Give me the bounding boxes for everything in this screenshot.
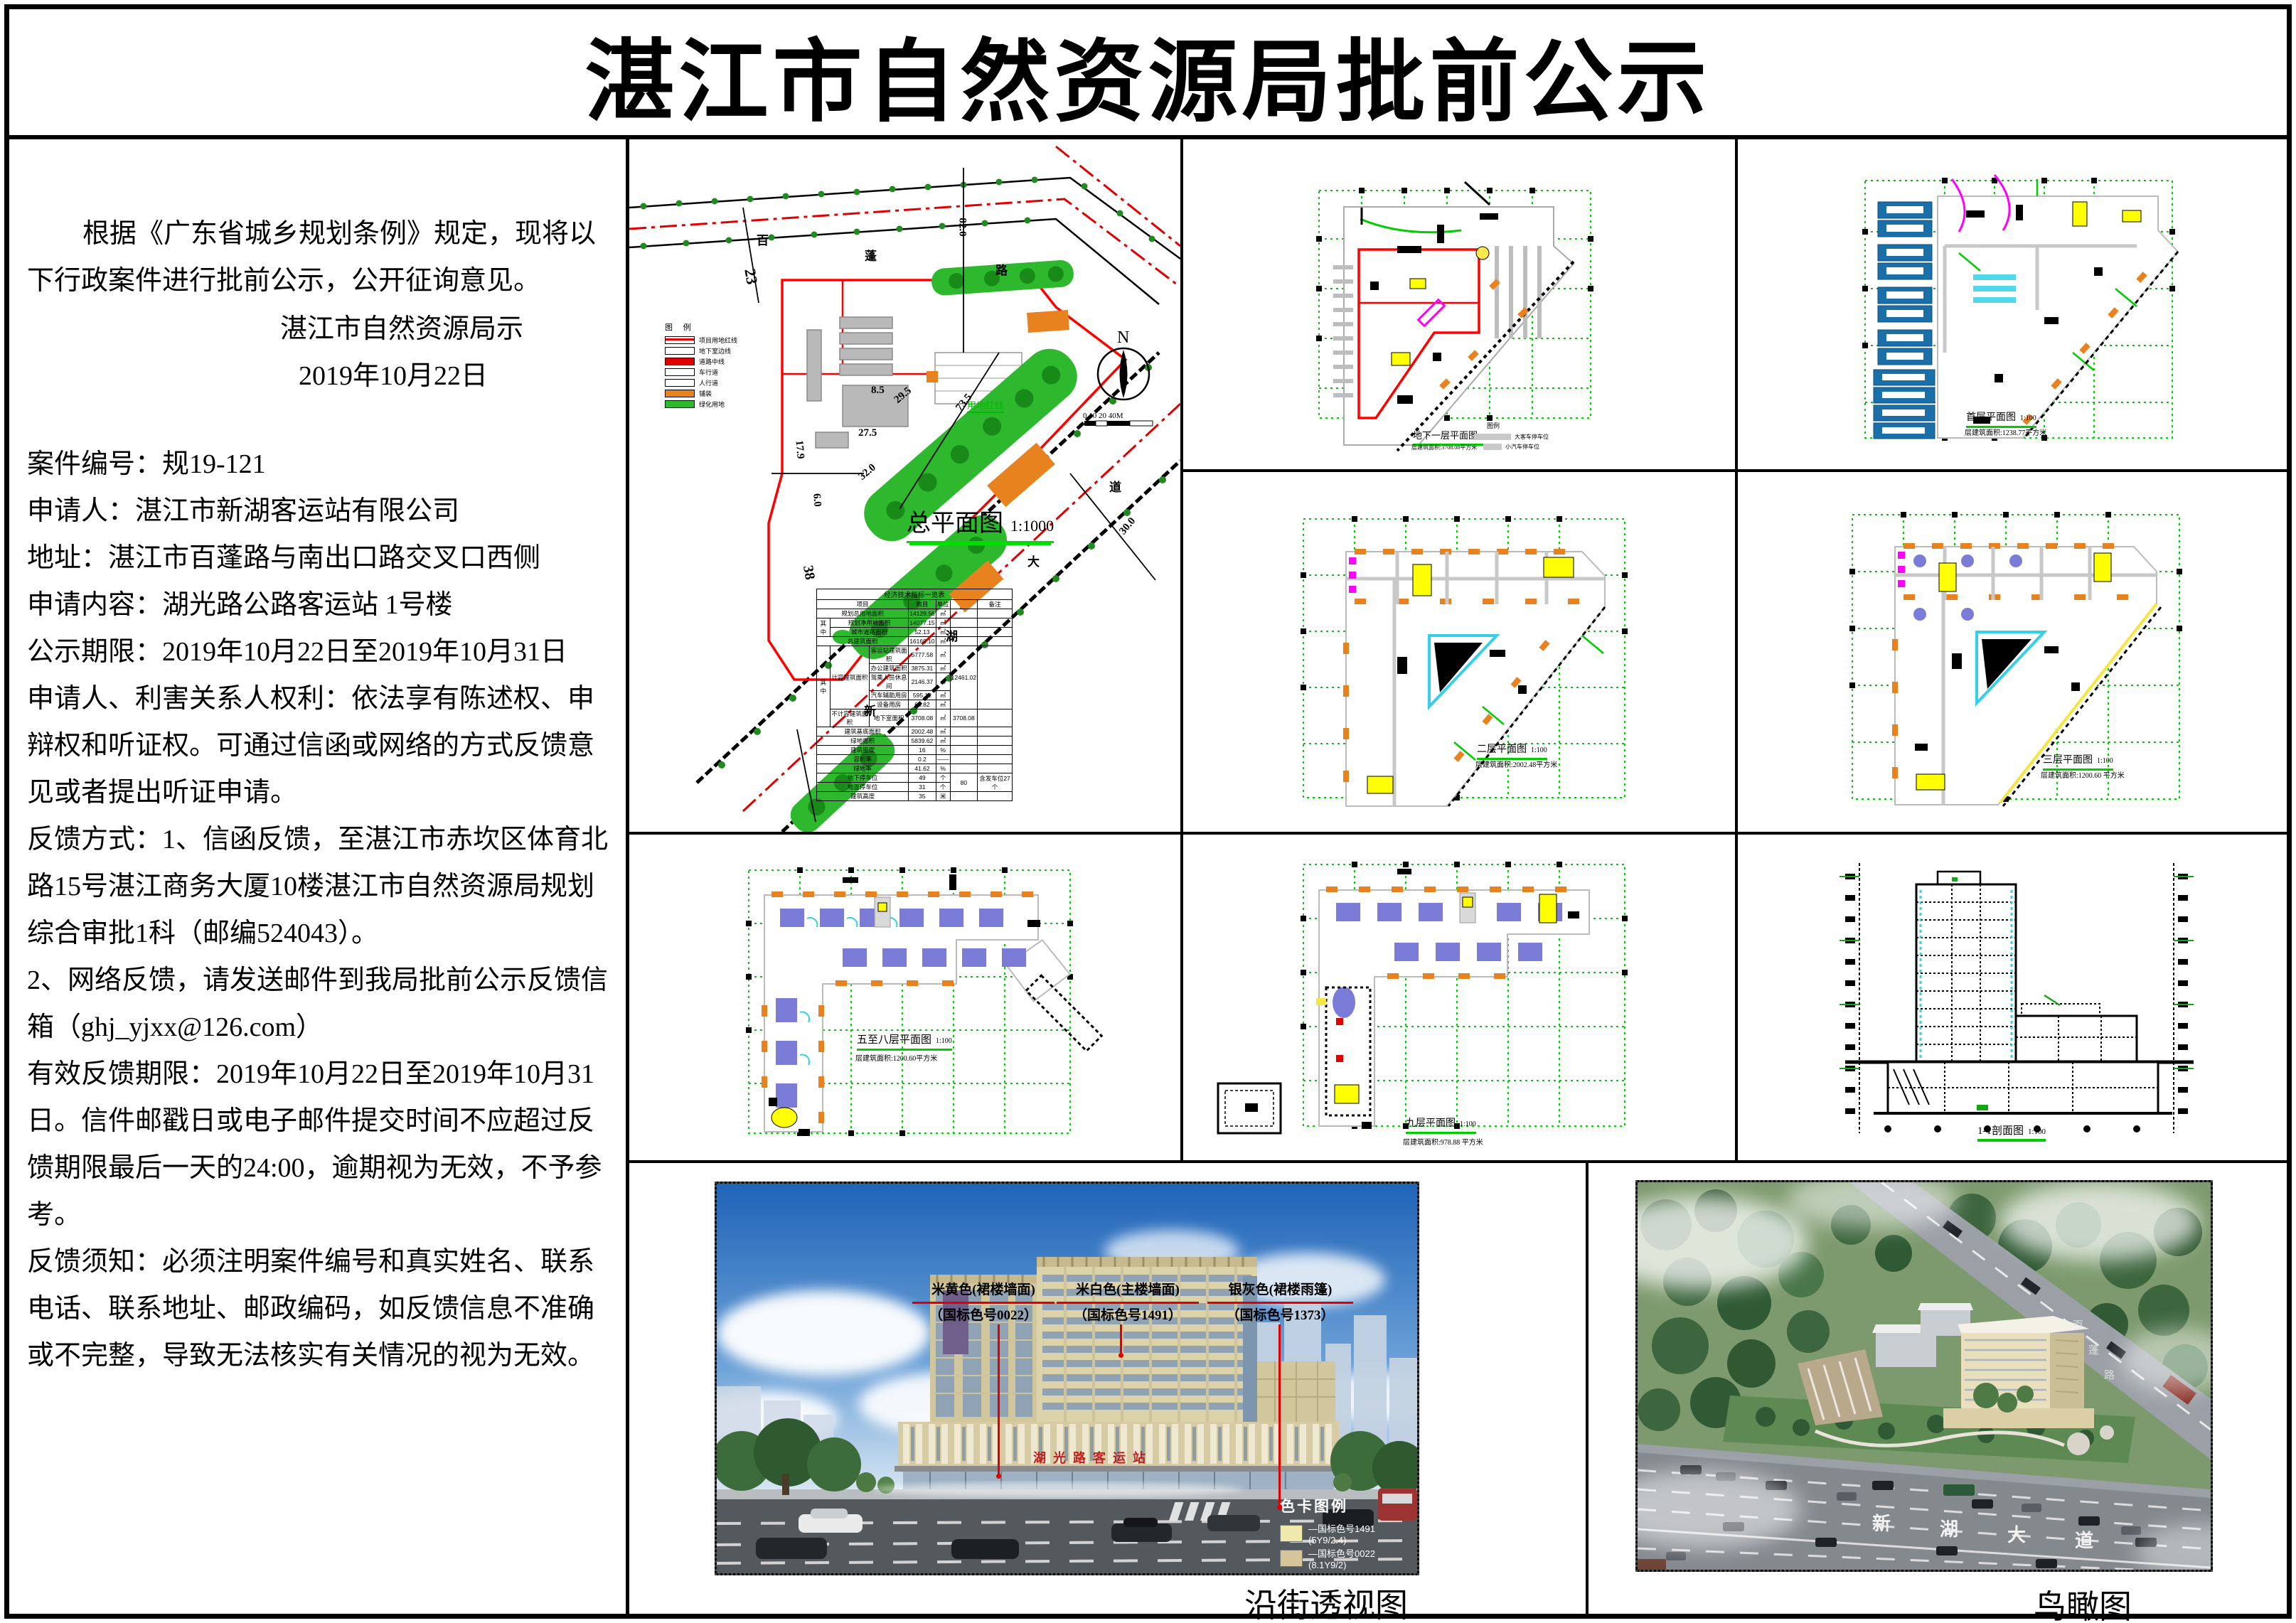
callout-underline: [1207, 1302, 1353, 1304]
caption-text: 地下一层平面图: [1413, 430, 1478, 441]
indicator-cell: 5777.58: [909, 646, 936, 664]
bus-space-swatch-icon: [1474, 434, 1511, 440]
indicator-cell: [950, 628, 977, 637]
indicator-cell: 其中: [817, 646, 831, 727]
legend-row: 小汽车停车位: [1474, 441, 1549, 451]
indicators-table: 经济技术指标一览表项目数目单位备注规划总用地面积14129.56㎡其中规划净用地…: [816, 589, 1013, 801]
indicator-cell: 个: [936, 783, 950, 792]
third-floor-panel: 三层平面图1:100 层建筑面积:1200.60 平方米: [1739, 472, 2292, 832]
floor5-8-panel: 五至八层平面图1:100 层建筑面积:1200.60平方米: [629, 835, 1180, 1160]
indicator-cell: 41.62: [909, 764, 936, 773]
indicator-cell: 31: [909, 783, 936, 792]
notice-line: 公示期限：2019年10月22日至2019年10月31日: [27, 628, 617, 675]
caption-scale: 1:100: [2020, 414, 2036, 422]
indicator-cell: [950, 746, 977, 755]
legend-row: 道路中线: [665, 356, 759, 367]
legend-swatch-green-icon: [665, 400, 695, 408]
basement-area: 层建筑面积:3708.08平方米: [1411, 444, 1477, 451]
notice-line: 反馈方式：1、信函反馈，至湛江市赤坎区体育北路15号湛江商务大厦10楼湛江市自然…: [27, 816, 617, 957]
first-floor-area: 层建筑面积:1238.77平方米: [1965, 427, 2046, 437]
third-floor-area: 层建筑面积:1200.60 平方米: [2041, 769, 2125, 780]
indicator-cell: 项目: [817, 600, 909, 609]
first-floor-panel: 首层平面图1:100 层建筑面积:1238.77平方米: [1739, 139, 2292, 469]
indicator-cell: 地下停车位: [817, 773, 909, 783]
section-panel: 1-1剖面图1:100: [1739, 835, 2292, 1160]
indicator-cell: 建筑密度: [817, 746, 909, 755]
legend-label: 人行道: [699, 378, 718, 387]
dimension-label: 27.5: [858, 427, 877, 439]
avenue-name-char: 新: [1872, 1509, 1891, 1536]
callout-name: 米黄色(裙楼墙面): [912, 1280, 1054, 1301]
second-floor-area: 层建筑面积:2002.48平方米: [1475, 759, 1557, 769]
grid-line: [1180, 139, 1183, 1163]
indicator-cell: 其中: [817, 618, 831, 637]
side-road-name-char: 蓬: [2088, 1342, 2099, 1357]
indicator-cell: [950, 609, 977, 618]
dimension-label: 82.0: [956, 218, 968, 236]
first-floor-caption: 首层平面图1:100: [1966, 412, 2036, 428]
callout-code: （国标色号1491）: [1057, 1305, 1199, 1327]
ninth-floor-panel: 九层平面图1:100 层建筑面积:978.88 平方米: [1184, 835, 1735, 1160]
indicator-cell: 595.12: [909, 691, 936, 700]
road-name-char: 百: [757, 230, 769, 248]
callout-name: 银灰色(裙楼雨篷): [1207, 1280, 1353, 1301]
ninth-floor-caption: 九层平面图1:100: [1406, 1118, 1476, 1134]
indicator-cell: [950, 727, 977, 736]
color-label: —国标色号1373 (2.5PB7.5/1): [1308, 1571, 1415, 1576]
callout-code: （国标色号1373）: [1207, 1305, 1353, 1327]
caption-scale: 1:1000: [1010, 517, 1054, 535]
indicator-cell: 3875.31: [909, 664, 936, 673]
indicator-cell: 计容建筑面积: [830, 646, 869, 709]
indicator-cell: 3708.08: [909, 709, 936, 727]
indicator-cell: ㎡: [936, 673, 950, 691]
caption-text: 总平面图: [907, 510, 1003, 537]
indicator-cell: 驾乘人员休息间: [870, 673, 909, 691]
indicator-cell: 2146.37: [909, 673, 936, 691]
birdseye-art: [1638, 1182, 2211, 1570]
indicator-cell: [978, 755, 1013, 764]
indicator-cell: ㎡: [936, 700, 950, 709]
indicator-cell: 12461.02: [950, 646, 977, 709]
legend-label: 地下室边线: [699, 346, 731, 355]
notice-line: 反馈须知：必须注明案件编号和真实姓名、联系电话、联系地址、邮政编码，如反馈信息不…: [27, 1238, 617, 1379]
indicator-cell: [978, 727, 1013, 736]
floor5-8-drawing: [629, 835, 1180, 1160]
color-legend-row: —国标色号1373 (2.5PB7.5/1): [1280, 1570, 1415, 1575]
building-sign: 湖光路客运站: [1033, 1448, 1153, 1467]
birdseye-caption: 鸟瞰图: [2034, 1581, 2132, 1623]
ninth-floor-area: 层建筑面积:978.88 平方米: [1403, 1136, 1483, 1147]
color-callout-white: 米白色(主楼墙面) （国标色号1491）: [1057, 1280, 1199, 1327]
callout-name: 米白色(主楼墙面): [1057, 1280, 1199, 1301]
indicator-cell: ㎡: [936, 609, 950, 618]
caption-text: 九层平面图: [1406, 1118, 1456, 1129]
site-plan-legend: 图 例 项目用地红线 地下室边线 道路中线 车行道 人行道 铺装 绿化用地: [665, 321, 759, 409]
road-name-char: 大: [1027, 552, 1040, 569]
car-space-swatch-icon: [1483, 444, 1502, 450]
notice-line: 地址：湛江市百蓬路与南出口路交叉口西侧: [27, 535, 617, 582]
indicator-cell: 66.82: [909, 700, 936, 709]
indicator-cell: ㎡: [936, 727, 950, 736]
dimension-label: 23: [740, 267, 761, 286]
notice-page: 湛江市自然资源局批前公示 根据《广东省城乡规划条例》规定，现将以下行政案件进行批…: [0, 0, 2296, 1623]
indicator-cell: 2002.48: [909, 727, 936, 736]
indicator-cell: 汽车辅助用房: [870, 691, 909, 700]
legend-swatch-outline-icon: [665, 347, 695, 355]
legend-label: 小汽车停车位: [1505, 443, 1539, 451]
indicator-cell: ㎡: [936, 637, 950, 646]
side-road-name-char: 百: [2073, 1317, 2083, 1332]
caption-text: 二层平面图: [1477, 744, 1527, 755]
indicator-cell: 5839.62: [909, 736, 936, 746]
indicator-cell: ㎡: [936, 628, 950, 637]
notice-intro: 根据《广东省城乡规划条例》规定，现将以下行政案件进行批前公示，公开征询意见。: [27, 210, 617, 304]
indicator-cell: 办公建筑面积: [870, 664, 909, 673]
indicator-cell: 数目: [909, 600, 936, 609]
indicator-cell: 规划净用地面积: [830, 618, 908, 628]
color-callout-beige: 米黄色(裙楼墙面) （国标色号0022）: [912, 1280, 1054, 1327]
legend-label: 大客车停车位: [1515, 433, 1549, 441]
indicator-cell: 单位: [936, 600, 950, 609]
legend-swatch-walk-icon: [665, 379, 695, 387]
legend-row: 项目用地红线: [665, 335, 759, 346]
callout-underline: [912, 1302, 1054, 1304]
indicator-cell: 容积率: [817, 755, 909, 764]
indicator-cell: 0.2: [909, 755, 936, 764]
site-plan-caption: 总平面图1:1000: [907, 503, 1054, 543]
perspective-caption: 沿街透视图: [1244, 1580, 1408, 1623]
third-floor-drawing: [1739, 472, 2292, 832]
indicator-cell: ㎡: [936, 736, 950, 746]
indicator-cell: 城市道路面积: [830, 628, 908, 637]
notice-date: 2019年10月22日: [299, 353, 617, 400]
indicator-cell: 设备用房: [870, 700, 909, 709]
legend-row: 大客车停车位: [1474, 432, 1549, 441]
color-label: —国标色号1491 (5Y9/2.4): [1308, 1521, 1415, 1546]
color-swatch-1491-icon: [1280, 1525, 1303, 1542]
color-legend-row: —国标色号0022 (8.1Y9/2): [1280, 1546, 1415, 1570]
legend-swatch-paving-icon: [665, 390, 695, 397]
indicator-cell: 35: [909, 792, 936, 801]
indicator-cell: [978, 637, 1013, 646]
indicator-cell: ——: [936, 755, 950, 764]
color-legend-row: —国标色号1491 (5Y9/2.4): [1280, 1521, 1415, 1546]
legend-swatch-redline-icon: [665, 336, 695, 344]
svg-text:N: N: [1117, 328, 1129, 347]
indicator-cell: 80: [950, 773, 977, 792]
callout-leader-dot: [1118, 1353, 1123, 1358]
indicator-cell: 备注: [978, 600, 1013, 609]
indicator-cell: [950, 600, 977, 609]
second-floor-panel: 二层平面图1:100 层建筑面积:2002.48平方米: [1184, 472, 1735, 832]
legend-row: 绿化用地: [665, 399, 759, 409]
callout-code: （国标色号0022）: [912, 1305, 1054, 1327]
legend-row: 车行道: [665, 367, 759, 377]
indicator-cell: [978, 709, 1013, 727]
indicator-cell: 含发车位27个: [978, 773, 1013, 792]
dimension-label: 8.5: [871, 385, 885, 397]
callout-underline: [1057, 1302, 1199, 1304]
road-name-char: 路: [995, 260, 1008, 278]
caption-scale: 1:100: [1460, 1120, 1476, 1128]
second-floor-caption: 二层平面图1:100: [1477, 744, 1547, 760]
indicator-cell: 个: [936, 773, 950, 783]
indicator-cell: 地面停车位: [817, 783, 909, 792]
caption-text: 1-1剖面图: [1977, 1125, 2024, 1137]
indicator-cell: [978, 792, 1013, 801]
indicator-cell: 总建筑面积: [817, 637, 909, 646]
grid-line: [1735, 139, 1738, 1163]
section-drawing: [1739, 835, 2292, 1160]
callout-leader-line: [1278, 1324, 1281, 1506]
indicator-cell: [950, 618, 977, 628]
legend-label: 项目用地红线: [699, 336, 737, 345]
indicator-cell: [950, 755, 977, 764]
indicator-cell: 米: [936, 792, 950, 801]
dimension-label: 38: [799, 564, 818, 582]
legend-title: 图 例: [665, 321, 759, 333]
indicator-cell: 客运站建筑面积: [870, 646, 909, 664]
indicator-cell: 16169.10: [909, 637, 936, 646]
section-caption: 1-1剖面图1:100: [1977, 1125, 2046, 1142]
indicator-cell: ㎡: [936, 618, 950, 628]
indicator-cell: 14129.56: [909, 609, 936, 618]
road-name-char: 蓬: [865, 246, 877, 264]
road-name-char: 道: [1109, 477, 1121, 495]
indicator-cell: 52.13: [909, 628, 936, 637]
color-swatch-1373-icon: [1280, 1575, 1303, 1576]
color-label: —国标色号0022 (8.1Y9/2): [1308, 1546, 1415, 1570]
indicator-cell: [978, 609, 1013, 618]
callout-leader-line: [1120, 1324, 1122, 1354]
indicator-cell: 绿地率: [817, 764, 909, 773]
floor5-8-caption: 五至八层平面图1:100: [857, 1034, 952, 1051]
indicator-cell: [978, 646, 1013, 709]
grid-line: [626, 1160, 2287, 1163]
avenue-name-char: 大: [2007, 1521, 2026, 1547]
indicator-cell: 经济技术指标一览表: [817, 589, 1013, 600]
indicator-cell: [950, 792, 977, 801]
grid-line: [1586, 1160, 1588, 1615]
indicator-cell: ㎡: [936, 691, 950, 700]
side-road-name-char: 路: [2104, 1367, 2115, 1382]
indicator-cell: [978, 628, 1013, 637]
indicator-cell: 16: [909, 746, 936, 755]
indicator-cell: [950, 637, 977, 646]
notice-line: 申请人、利害关系人权利：依法享有陈述权、申辩权和听证权。可通过信函或网络的方式反…: [27, 675, 617, 816]
dimension-label: 17.9: [793, 440, 806, 460]
notice-items: 案件编号：规19-121申请人：湛江市新湖客运站有限公司地址：湛江市百蓬路与南出…: [27, 441, 617, 1379]
legend-row: 铺装: [665, 388, 759, 399]
indicator-cell: ㎡: [936, 664, 950, 673]
notice-line: 申请内容：湖光路公路客运站 1号楼: [27, 582, 617, 628]
caption-scale: 1:100: [1531, 746, 1547, 754]
caption-text: 首层平面图: [1966, 412, 2016, 423]
indicator-cell: 不计容建筑面积: [830, 709, 869, 727]
callout-leader-line: [998, 1324, 1000, 1475]
indicator-cell: %: [936, 764, 950, 773]
indicator-cell: %: [936, 746, 950, 755]
indicator-cell: [978, 736, 1013, 746]
indicator-cell: 规划总用地面积: [817, 609, 909, 618]
legend-row: 人行道: [665, 377, 759, 388]
notice-line: 申请人：湛江市新湖客运站有限公司: [27, 488, 617, 535]
callout-leader-dot: [996, 1474, 1001, 1479]
color-swatch-0022-icon: [1280, 1550, 1303, 1567]
indicator-cell: [950, 736, 977, 746]
caption-text: 三层平面图: [2043, 755, 2093, 766]
basement-plan-panel: 地下一层平面图1:100 层建筑面积:3708.08平方米 图例 大客车停车位 …: [1184, 139, 1735, 469]
street-perspective-image: 米黄色(裙楼墙面) （国标色号0022） 米白色(主楼墙面) （国标色号1491…: [715, 1182, 1419, 1575]
indicator-cell: 地下室面积: [870, 709, 909, 727]
legend-label: 车行道: [699, 368, 718, 377]
floor5-8-area: 层建筑面积:1200.60平方米: [855, 1052, 937, 1063]
indicator-cell: 绿地面积: [817, 736, 909, 746]
birdseye-image: 新 湖 大 道 百 蓬 路: [1635, 1180, 2213, 1572]
legend-label: 铺装: [699, 389, 712, 398]
indicator-cell: ㎡: [936, 646, 950, 664]
caption-scale: 1:100: [2097, 757, 2113, 765]
notice-line: 2、网络反馈，请发送邮件到我局批前公示反馈信箱（ghj_yjxx@126.com…: [27, 957, 617, 1051]
legend-row: 地下室边线: [665, 346, 759, 356]
notice-text-block: 根据《广东省城乡规划条例》规定，现将以下行政案件进行批前公示，公开征询意见。 湛…: [27, 210, 617, 1379]
indicator-cell: [950, 764, 977, 773]
color-callout-gray: 银灰色(裙楼雨篷) （国标色号1373）: [1207, 1280, 1353, 1327]
indicator-cell: ㎡: [936, 709, 950, 727]
legend-swatch-road-icon: [665, 368, 695, 376]
notice-line: 有效反馈期限：2019年10月22日至2019年10月31日。信件邮戳日或电子邮…: [27, 1051, 617, 1238]
notice-issuer: 湛江市自然资源局示: [280, 306, 617, 353]
dimension-label: 6.0: [810, 493, 823, 507]
indicator-cell: 49: [909, 773, 936, 783]
indicator-cell: 建筑基底面积: [817, 727, 909, 736]
indicator-cell: 14077.15: [909, 618, 936, 628]
notice-line: 案件编号：规19-121: [27, 441, 617, 488]
color-legend-title: 色卡图例: [1280, 1495, 1415, 1516]
second-floor-drawing: [1184, 472, 1735, 832]
caption-text: 五至八层平面图: [857, 1034, 931, 1046]
basement-plan-drawing: [1184, 139, 1735, 469]
color-card-legend: 色卡图例 —国标色号1491 (5Y9/2.4) —国标色号0022 (8.1Y…: [1280, 1495, 1415, 1575]
caption-scale: 1:100: [936, 1037, 952, 1045]
indicator-cell: [978, 746, 1013, 755]
site-plan-panel: N 0 10 20 40M 图 例 项目用地红线 地下室边线 道路中线 车行道 …: [629, 139, 1180, 832]
avenue-name-char: 湖: [1940, 1515, 1958, 1541]
indicator-cell: [978, 618, 1013, 628]
svg-text:0 10 20 40M: 0 10 20 40M: [1083, 412, 1123, 420]
legend-label: 绿化用地: [699, 400, 725, 409]
legend-label: 道路中线: [699, 357, 725, 366]
legend-title: 图例: [1487, 421, 1549, 430]
indicator-cell: [978, 764, 1013, 773]
caption-scale: 1:100: [2028, 1127, 2046, 1136]
ninth-floor-drawing: [1184, 835, 1735, 1160]
legend-swatch-redbar-icon: [665, 358, 695, 365]
avenue-name-char: 道: [2075, 1526, 2093, 1553]
indicator-cell: 3708.08: [950, 709, 977, 727]
basement-legend: 图例 大客车停车位 小汽车停车位: [1474, 421, 1549, 451]
red-line-label: 用地红线: [967, 398, 1004, 413]
indicator-cell: 建筑高度: [817, 792, 909, 801]
third-floor-caption: 三层平面图1:100: [2043, 754, 2113, 771]
page-title: 湛江市自然资源局批前公示: [0, 10, 2296, 139]
